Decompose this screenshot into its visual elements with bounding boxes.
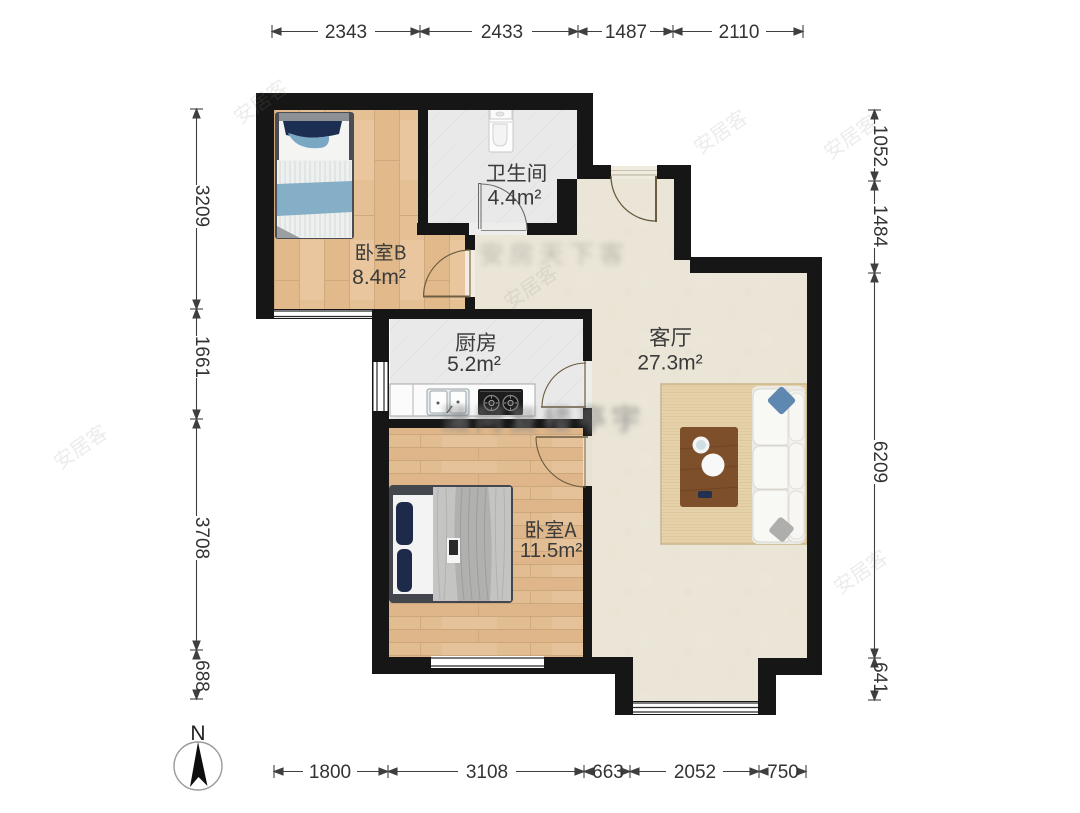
- svg-text:750: 750: [767, 762, 799, 783]
- svg-text:3108: 3108: [466, 762, 508, 783]
- svg-text:8.4m²: 8.4m²: [352, 266, 406, 289]
- svg-text:1487: 1487: [605, 22, 647, 43]
- svg-text:663: 663: [592, 762, 624, 783]
- svg-text:2052: 2052: [674, 762, 716, 783]
- svg-text:4.4m²: 4.4m²: [488, 187, 542, 210]
- svg-text:688: 688: [191, 660, 212, 692]
- svg-text:1661: 1661: [191, 336, 212, 378]
- svg-text:3209: 3209: [191, 185, 212, 227]
- svg-text:2433: 2433: [481, 22, 523, 43]
- svg-text:2343: 2343: [325, 22, 367, 43]
- svg-text:5.2m²: 5.2m²: [447, 353, 501, 376]
- svg-text:3708: 3708: [191, 517, 212, 559]
- svg-text:6209: 6209: [869, 441, 890, 483]
- svg-text:11.5m²: 11.5m²: [520, 539, 582, 562]
- svg-text:1484: 1484: [869, 205, 890, 248]
- svg-text:27.3m²: 27.3m²: [637, 352, 702, 375]
- svg-text:2110: 2110: [719, 22, 760, 43]
- svg-text:641: 641: [869, 662, 890, 694]
- svg-text:1800: 1800: [309, 762, 351, 783]
